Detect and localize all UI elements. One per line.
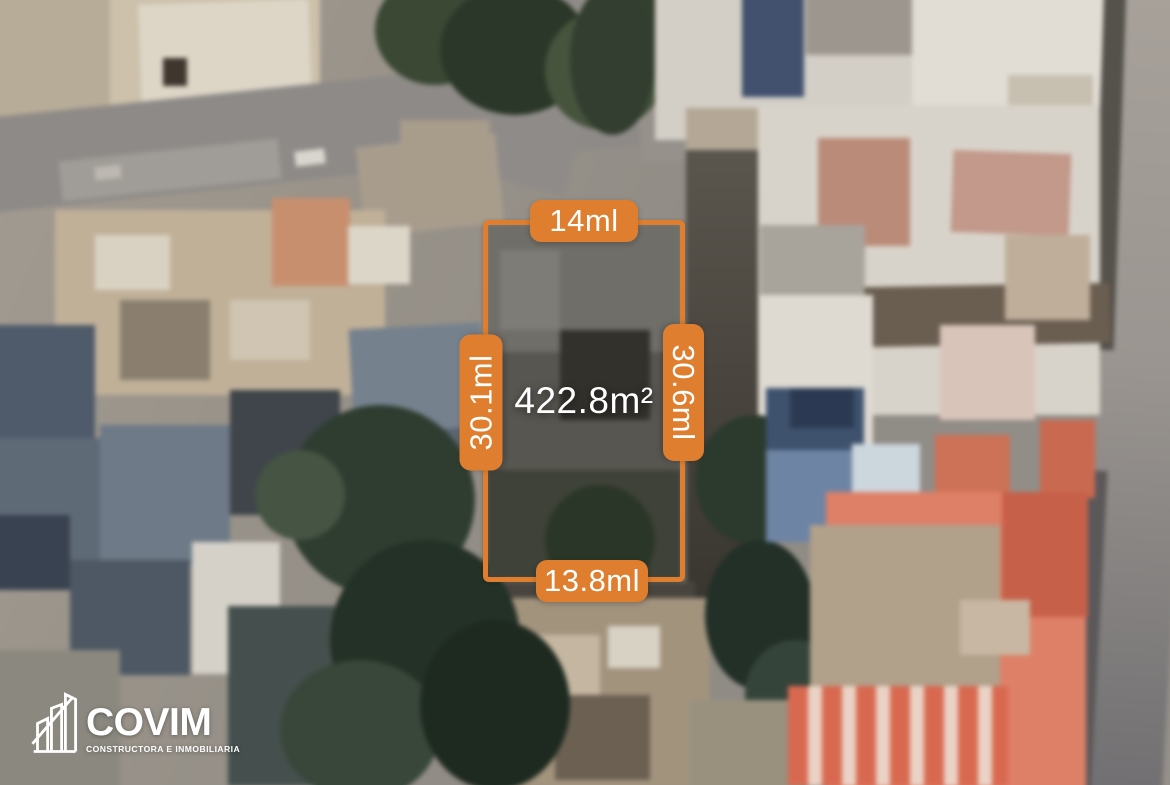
area-label: 422.8m²: [483, 380, 685, 422]
measurement-value-bottom: 13.8ml: [544, 563, 640, 599]
brand-tagline: CONSTRUCTORA E INMOBILIARIA: [86, 745, 240, 754]
brand-name: COVIM: [86, 703, 240, 742]
measurement-label-bottom: 13.8ml: [536, 560, 648, 602]
measurement-value-top: 14ml: [549, 203, 618, 239]
brand-logo: COVIM CONSTRUCTORA E INMOBILIARIA: [31, 688, 240, 754]
property-flyer: 14ml 30.1ml 30.6ml 13.8ml 422.8m² COVIM …: [0, 0, 1170, 785]
measurement-label-top: 14ml: [530, 200, 638, 242]
buildings-icon: [31, 688, 77, 754]
